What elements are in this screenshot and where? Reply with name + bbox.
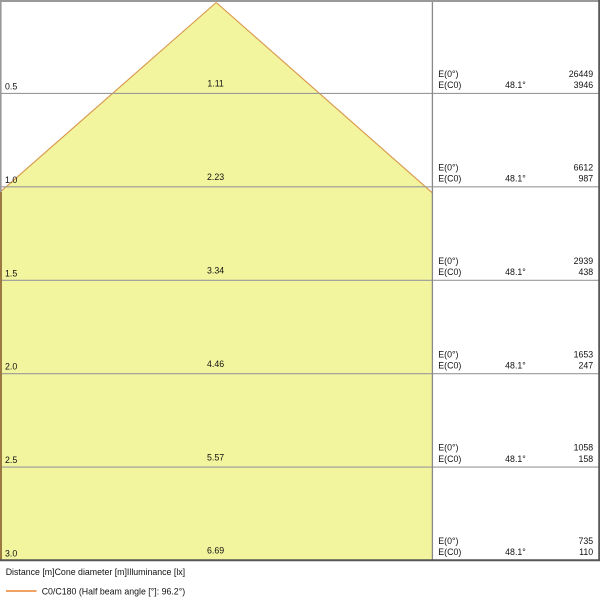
- svg-text:158: 158: [579, 454, 594, 464]
- svg-text:1.0: 1.0: [5, 175, 17, 185]
- svg-text:E(0°): E(0°): [438, 162, 458, 172]
- svg-text:E(C0): E(C0): [438, 360, 461, 370]
- svg-text:2939: 2939: [574, 256, 594, 266]
- svg-text:2.0: 2.0: [5, 362, 17, 372]
- svg-text:110: 110: [579, 547, 593, 557]
- svg-text:2.5: 2.5: [5, 455, 17, 465]
- svg-text:E(C0): E(C0): [438, 454, 461, 464]
- svg-text:6.69: 6.69: [207, 546, 224, 556]
- svg-text:48.1°: 48.1°: [505, 360, 526, 370]
- svg-text:E(C0): E(C0): [438, 267, 461, 277]
- svg-text:2.23: 2.23: [207, 172, 224, 182]
- svg-text:0.5: 0.5: [5, 81, 17, 91]
- svg-text:987: 987: [579, 174, 594, 184]
- svg-text:E(0°): E(0°): [438, 536, 458, 546]
- svg-text:1653: 1653: [574, 349, 594, 359]
- svg-text:E(0°): E(0°): [438, 443, 458, 453]
- svg-text:E(C0): E(C0): [438, 80, 461, 90]
- svg-text:E(C0): E(C0): [438, 547, 461, 557]
- svg-text:48.1°: 48.1°: [505, 174, 526, 184]
- svg-text:1.11: 1.11: [207, 79, 224, 89]
- svg-text:247: 247: [579, 360, 594, 370]
- svg-text:E(0°): E(0°): [438, 256, 458, 266]
- svg-text:1.5: 1.5: [5, 268, 17, 278]
- svg-text:C0/C180 (Half beam angle [°]:: C0/C180 (Half beam angle [°]: 96.2°): [42, 587, 186, 597]
- svg-text:735: 735: [579, 536, 594, 546]
- svg-text:4.46: 4.46: [207, 359, 224, 369]
- svg-text:6612: 6612: [574, 162, 594, 172]
- svg-text:E(C0): E(C0): [438, 174, 461, 184]
- svg-text:5.57: 5.57: [207, 452, 224, 462]
- svg-text:26449: 26449: [569, 69, 594, 79]
- svg-text:48.1°: 48.1°: [505, 267, 526, 277]
- svg-text:E(0°): E(0°): [438, 349, 458, 359]
- svg-text:3.0: 3.0: [5, 549, 17, 559]
- svg-text:438: 438: [579, 267, 594, 277]
- svg-text:Distance [m]Cone diameter [m]I: Distance [m]Cone diameter [m]Illuminance…: [6, 567, 185, 577]
- svg-text:3946: 3946: [574, 80, 594, 90]
- svg-text:48.1°: 48.1°: [505, 80, 526, 90]
- svg-text:48.1°: 48.1°: [505, 454, 526, 464]
- svg-text:1058: 1058: [574, 443, 594, 453]
- svg-text:48.1°: 48.1°: [505, 547, 526, 557]
- svg-text:3.34: 3.34: [207, 266, 224, 276]
- svg-text:E(0°): E(0°): [438, 69, 458, 79]
